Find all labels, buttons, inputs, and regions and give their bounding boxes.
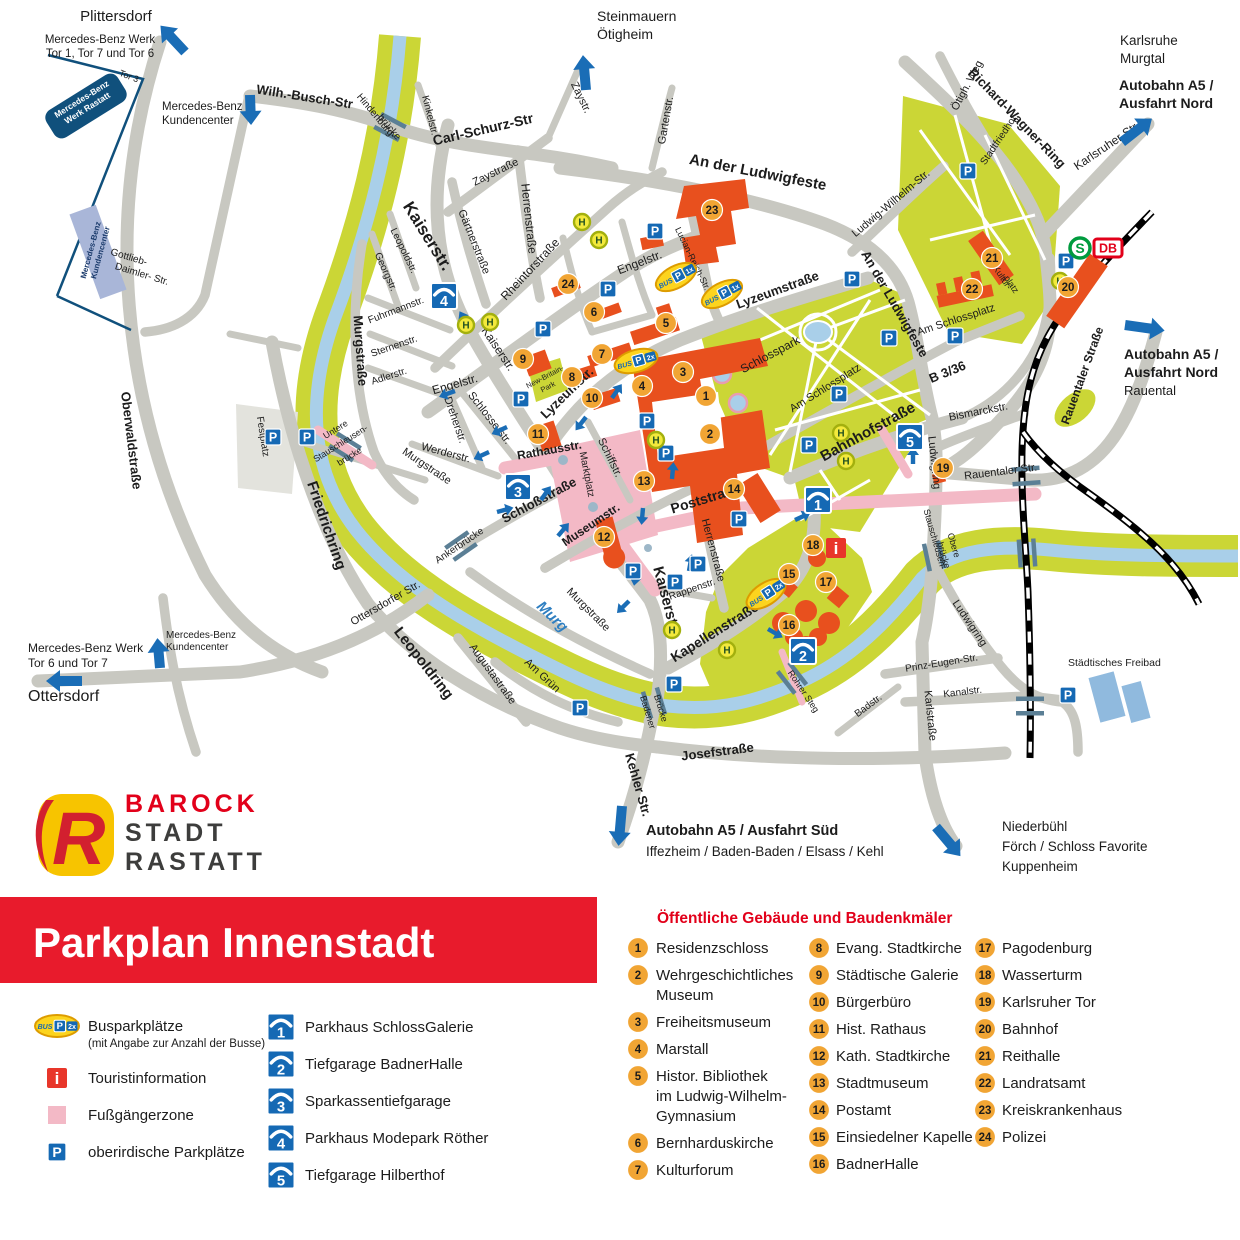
- schlosspark-pond: [804, 321, 832, 343]
- parking-letter: P: [671, 575, 679, 589]
- marker-number: 10: [813, 997, 826, 1009]
- parking-letter: P: [517, 392, 525, 406]
- parking-icon: P: [299, 429, 315, 445]
- marker-number: 16: [813, 1159, 826, 1171]
- parking-garage-icon-1: 1: [268, 1014, 295, 1042]
- map-marker-18: 18: [803, 535, 824, 556]
- bus-stop-icon: H: [838, 453, 854, 469]
- destination-label: Mercedes-Benz Werk: [28, 641, 144, 655]
- marker-number: 18: [807, 540, 820, 552]
- marker-number: 5: [635, 1071, 642, 1083]
- parking-letter: P: [662, 446, 670, 460]
- parking-letter: P: [604, 282, 612, 296]
- marker-number: 23: [979, 1105, 992, 1117]
- destination-label: Murgtal: [1120, 51, 1165, 66]
- map-marker-10: 10: [809, 992, 830, 1013]
- marker-number: 8: [816, 943, 823, 955]
- map-marker-17: 17: [975, 938, 996, 959]
- garage-number: 1: [814, 498, 822, 514]
- map-marker-2: 2: [628, 965, 649, 986]
- parking-letter: P: [303, 430, 311, 444]
- bus-stop-letter: H: [842, 457, 849, 468]
- parking-letter: P: [964, 164, 972, 178]
- marker-number: 15: [783, 569, 796, 581]
- bus-stop-letter: H: [578, 218, 585, 229]
- building-list-text: Freiheitsmuseum: [656, 1014, 771, 1031]
- map-marker-24: 24: [975, 1127, 996, 1148]
- garage-number: 4: [277, 1136, 286, 1152]
- map-marker-22: 22: [975, 1073, 996, 1094]
- parking-icon: P: [844, 271, 860, 287]
- title-banner: Parkplan Innenstadt: [0, 897, 597, 983]
- destination-label: Ötigheim: [597, 25, 653, 42]
- pedestrian-zone-swatch: [48, 1106, 66, 1124]
- bus-stop-icon: H: [591, 232, 607, 248]
- rail-logos: SDB: [1070, 238, 1122, 258]
- marker-number: 11: [532, 429, 545, 441]
- marker-number: 4: [635, 1044, 642, 1056]
- marker-number: 21: [979, 1051, 992, 1063]
- bus-stop-icon: H: [719, 642, 735, 658]
- building-list-text: BadnerHalle: [836, 1156, 919, 1173]
- building-list-item: 14Postamt: [809, 1100, 892, 1121]
- map-marker-7: 7: [592, 344, 613, 365]
- map-marker-10: 10: [582, 388, 603, 409]
- marker-number: 13: [638, 476, 651, 488]
- map-marker-16: 16: [779, 615, 800, 636]
- parking-garage-icon-1: 1: [805, 487, 831, 514]
- building-list-text: Landratsamt: [1002, 1075, 1086, 1092]
- map-marker-14: 14: [724, 479, 745, 500]
- map-marker-20: 20: [975, 1019, 996, 1040]
- parkplan-poster: Mercedes-BenzWerk RastattMercedes-BenzKu…: [0, 0, 1240, 1240]
- map-marker-15: 15: [809, 1127, 830, 1148]
- parking-letter: P: [805, 438, 813, 452]
- map-marker-8: 8: [809, 938, 830, 959]
- legend-garage-label: Tiefgarage BadnerHalle: [305, 1056, 463, 1073]
- building-list-text: Marstall: [656, 1041, 709, 1058]
- marker-number: 9: [816, 970, 822, 982]
- parking-icon: P: [881, 330, 897, 346]
- bus-stop-letter: H: [652, 436, 659, 447]
- info-letter: i: [55, 1069, 60, 1088]
- logo-word-bot: RASTATT: [125, 848, 266, 876]
- parking-icon: P: [831, 386, 847, 402]
- map-marker-20: 20: [1058, 277, 1079, 298]
- bus-p: P: [57, 1021, 64, 1032]
- building-list-item: 24Polizei: [975, 1127, 1047, 1148]
- parking-letter: P: [835, 387, 843, 401]
- building-list-text: Museum: [656, 987, 714, 1004]
- destination-label: Rauental: [1124, 383, 1176, 398]
- destination-label: Autobahn A5 / Ausfahrt Süd: [646, 823, 838, 839]
- map-marker-4: 4: [628, 1039, 649, 1060]
- marker-number: 24: [562, 279, 575, 291]
- bus-stop-icon: H: [664, 622, 680, 638]
- parking-icon: P: [667, 574, 683, 590]
- tourist-info-icon: i: [47, 1068, 67, 1088]
- destination-label: Karlsruhe: [1120, 33, 1178, 48]
- map-marker-24: 24: [558, 274, 579, 295]
- page-title: Parkplan Innenstadt: [33, 919, 434, 966]
- destination-label: Kundencenter: [162, 115, 234, 127]
- marker-number: 14: [728, 484, 741, 496]
- destination-label: Autobahn A5 /: [1119, 77, 1213, 93]
- destination-label: Tor 1, Tor 7 und Tor 6: [46, 48, 154, 60]
- parking-letter: P: [576, 701, 584, 715]
- parking-icon: P: [1060, 687, 1076, 703]
- map-marker-2: 2: [700, 424, 721, 445]
- marker-number: 9: [520, 354, 526, 366]
- destination-label: Iffezheim / Baden-Baden / Elsass / Kehl: [646, 844, 884, 859]
- building-list-text: Wasserturm: [1002, 967, 1082, 984]
- marker-number: 17: [979, 943, 992, 955]
- map-marker-13: 13: [809, 1073, 830, 1094]
- marker-number: 2: [635, 970, 641, 982]
- tourist-info-icon: i: [826, 538, 846, 558]
- marker-number: 13: [813, 1078, 826, 1090]
- bus-stop-icon: H: [833, 425, 849, 441]
- destination-label: Kuppenheim: [1002, 859, 1078, 874]
- building-list-item: 22Landratsamt: [975, 1073, 1087, 1094]
- destination-label: Mercedes-Benz Werk: [45, 34, 156, 46]
- building-list-text: Einsiedelner Kapelle: [836, 1129, 973, 1146]
- bus-stop-icon: H: [648, 432, 664, 448]
- info-letter: i: [834, 539, 839, 558]
- legend-label: Busparkplätze: [88, 1018, 183, 1035]
- building-list-item: 13Stadtmuseum: [809, 1073, 929, 1094]
- marker-number: 6: [591, 307, 597, 319]
- building-list-text: Polizei: [1002, 1129, 1046, 1146]
- building-list-item: 10Bürgerbüro: [809, 992, 912, 1013]
- legend-label: oberirdische Parkplätze: [88, 1144, 245, 1161]
- marker-number: 4: [639, 381, 646, 393]
- map-marker-5: 5: [656, 313, 677, 334]
- parking-letter: P: [539, 322, 547, 336]
- map-marker-22: 22: [962, 279, 983, 300]
- legend-garage-label: Parkhaus SchlossGalerie: [305, 1019, 473, 1036]
- map-marker-12: 12: [809, 1046, 830, 1067]
- parking-icon: P: [48, 1143, 66, 1161]
- marker-number: 14: [813, 1105, 826, 1117]
- parking-letter: P: [629, 564, 637, 578]
- marker-number: 12: [813, 1051, 826, 1063]
- marker-number: 5: [663, 318, 670, 330]
- logo-word-mid: STADT: [125, 819, 226, 847]
- logo-word-top: BAROCK: [125, 790, 259, 818]
- map-marker-21: 21: [982, 248, 1003, 269]
- marker-number: 19: [937, 463, 950, 475]
- map-marker-12: 12: [594, 527, 615, 548]
- garage-number: 5: [906, 435, 914, 451]
- legend-label: Touristinformation: [88, 1070, 206, 1087]
- building-list-text: im Ludwig-Wilhelm-: [656, 1088, 787, 1105]
- map-marker-3: 3: [673, 362, 694, 383]
- bus-text: BUS: [38, 1024, 53, 1031]
- parking-letter: P: [848, 272, 856, 286]
- marker-number: 22: [966, 284, 979, 296]
- parking-letter: P: [1064, 688, 1072, 702]
- destination-label: Mercedes-Benz: [162, 101, 243, 113]
- marker-number: 24: [979, 1132, 992, 1144]
- bus-parking-icon: BUSP2x: [35, 1015, 79, 1037]
- parking-icon: P: [947, 328, 963, 344]
- building-list-text: Postamt: [836, 1102, 892, 1119]
- map-marker-5: 5: [628, 1066, 649, 1087]
- building-list-text: Reithalle: [1002, 1048, 1060, 1065]
- parking-letter: P: [735, 512, 743, 526]
- parking-icon: P: [625, 563, 641, 579]
- building-list-item: 21Reithalle: [975, 1046, 1061, 1067]
- parking-garage-icon-4: 4: [431, 283, 457, 310]
- marker-number: 8: [569, 372, 576, 384]
- tourist-info-icon: i: [826, 538, 846, 558]
- marker-number: 7: [599, 349, 605, 361]
- legend-garage-label: Parkhaus Modepark Röther: [305, 1130, 488, 1147]
- parking-letter: P: [1062, 254, 1070, 268]
- db-logo: DB: [1094, 239, 1122, 257]
- parking-icon: P: [690, 556, 706, 572]
- marker-number: 6: [635, 1138, 641, 1150]
- marker-number: 3: [680, 367, 686, 379]
- building-list-text: Evang. Stadtkirche: [836, 940, 962, 957]
- parking-letter: P: [885, 331, 893, 345]
- destination-label: Steinmauern: [597, 8, 676, 24]
- legend-garage-label: Tiefgarage Hilberthof: [305, 1167, 445, 1184]
- map-marker-11: 11: [809, 1019, 830, 1040]
- map-marker-23: 23: [702, 200, 723, 221]
- destination-label: Ausfahrt Nord: [1119, 95, 1213, 111]
- parking-letter: P: [951, 329, 959, 343]
- map-marker-4: 4: [632, 376, 653, 397]
- garage-number: 5: [277, 1173, 285, 1189]
- map-marker-15: 15: [779, 564, 800, 585]
- building-list-item: 16BadnerHalle: [809, 1154, 919, 1175]
- parking-icon: P: [647, 223, 663, 239]
- building-list-text: Histor. Bibliothek: [656, 1068, 768, 1085]
- parking-letter: P: [651, 224, 659, 238]
- garage-number: 3: [514, 485, 522, 501]
- parking-letter: P: [694, 557, 702, 571]
- bus-stop-letter: H: [668, 626, 675, 637]
- marker-number: 11: [813, 1024, 826, 1036]
- parking-garage-icon-5: 5: [268, 1162, 295, 1190]
- parking-icon: P: [600, 281, 616, 297]
- destination-label: Kundencenter: [166, 642, 229, 653]
- marker-number: 21: [986, 253, 999, 265]
- parking-letter: P: [52, 1144, 61, 1160]
- map-marker-9: 9: [809, 965, 830, 986]
- bus-stop-icon: H: [458, 317, 474, 333]
- garage-number: 3: [277, 1099, 285, 1115]
- destination-label: Ottersdorf: [28, 688, 100, 705]
- marker-number: 12: [598, 532, 611, 544]
- parking-icon: P: [666, 676, 682, 692]
- parking-garage-icon-3: 3: [268, 1088, 295, 1116]
- parking-letter: P: [670, 677, 678, 691]
- map-marker-23: 23: [975, 1100, 996, 1121]
- garage-number: 2: [277, 1062, 285, 1078]
- marker-number: 16: [783, 620, 796, 632]
- building-list-text: Karlsruher Tor: [1002, 994, 1096, 1011]
- map-marker-1: 1: [628, 938, 649, 959]
- marker-number: 7: [635, 1165, 641, 1177]
- building-list-text: Residenzschloss: [656, 940, 769, 957]
- building-list-item: 19Karlsruher Tor: [975, 992, 1096, 1013]
- map-marker-19: 19: [975, 992, 996, 1013]
- building-list-text: Pagodenburg: [1002, 940, 1092, 957]
- map-marker-7: 7: [628, 1160, 649, 1181]
- bus-stop-letter: H: [595, 236, 602, 247]
- destination-label: Niederbühl: [1002, 819, 1067, 834]
- building-list-text: Kulturforum: [656, 1162, 734, 1179]
- marker-number: 17: [820, 577, 833, 589]
- marker-number: 23: [706, 205, 719, 217]
- marker-number: 3: [635, 1017, 641, 1029]
- map-marker-19: 19: [933, 458, 954, 479]
- logo-mark-letter: R: [52, 797, 105, 880]
- map-marker-11: 11: [528, 424, 549, 445]
- marker-number: 2: [707, 429, 713, 441]
- building-list-item: 18Wasserturm: [975, 965, 1083, 986]
- sbahn-letter: S: [1075, 240, 1084, 256]
- map-marker-6: 6: [628, 1133, 649, 1154]
- map-marker-17: 17: [816, 572, 837, 593]
- parking-icon: P: [639, 413, 655, 429]
- bus-stop-icon: H: [574, 214, 590, 230]
- parking-icon: P: [265, 429, 281, 445]
- building-list-item: 20Bahnhof: [975, 1019, 1059, 1040]
- parking-icon: P: [801, 437, 817, 453]
- marker-number: 1: [635, 943, 642, 955]
- building-list-item: 4Marstall: [628, 1039, 709, 1060]
- map-marker-21: 21: [975, 1046, 996, 1067]
- building-list-text: Kreiskrankenhaus: [1002, 1102, 1122, 1119]
- destination-label: Plittersdorf: [80, 8, 153, 25]
- parking-icon: P: [731, 511, 747, 527]
- sbahn-logo: S: [1070, 238, 1090, 258]
- building-list-text: Bahnhof: [1002, 1021, 1059, 1038]
- destination-label: Tor 6 und Tor 7: [28, 656, 108, 670]
- building-list-item: 7Kulturforum: [628, 1160, 734, 1181]
- marker-number: 15: [813, 1132, 826, 1144]
- buildings-heading: Öffentliche Gebäude und Baudenkmäler: [657, 910, 952, 927]
- bus-stop-icon: H: [482, 314, 498, 330]
- db-letters: DB: [1099, 242, 1117, 256]
- parking-garage-icon-2: 2: [268, 1051, 295, 1079]
- parking-icon: P: [572, 700, 588, 716]
- marker-number: 22: [979, 1078, 992, 1090]
- parking-garage-icon-3: 3: [505, 474, 531, 501]
- building-list-text: Bernharduskirche: [656, 1135, 774, 1152]
- marker-number: 19: [979, 997, 992, 1009]
- destination-label: Städtisches Freibad: [1068, 657, 1161, 669]
- map-marker-18: 18: [975, 965, 996, 986]
- map-marker-13: 13: [634, 471, 655, 492]
- building-list-text: Kath. Stadtkirche: [836, 1048, 950, 1065]
- map-marker-8: 8: [562, 367, 583, 388]
- building-list-text: Städtische Galerie: [836, 967, 959, 984]
- parking-icon: P: [513, 391, 529, 407]
- legend-sublabel: (mit Angabe zur Anzahl der Busse): [88, 1038, 265, 1050]
- map-marker-3: 3: [628, 1012, 649, 1033]
- legend-garage-label: Sparkassentiefgarage: [305, 1093, 451, 1110]
- marker-number: 1: [703, 391, 710, 403]
- marker-number: 18: [979, 970, 992, 982]
- building-list-text: Stadtmuseum: [836, 1075, 929, 1092]
- bus-stop-letter: H: [837, 429, 844, 440]
- building-list-text: Wehrgeschichtliches: [656, 967, 793, 984]
- destination-label: Mercedes-Benz: [166, 630, 236, 641]
- bus-stop-letter: H: [462, 321, 469, 332]
- building-list-item: 11Hist. Rathaus: [809, 1019, 927, 1040]
- parking-garage-icon-5: 5: [897, 424, 923, 451]
- map-marker-9: 9: [513, 349, 534, 370]
- map-marker-1: 1: [696, 386, 717, 407]
- destination-label: Ausfahrt Nord: [1124, 364, 1218, 380]
- parking-garage-icon-4: 4: [268, 1125, 295, 1153]
- parking-garage-icon-2: 2: [790, 638, 816, 665]
- bus-stop-letter: H: [486, 318, 493, 329]
- marker-number: 20: [1062, 282, 1075, 294]
- building-list-text: Hist. Rathaus: [836, 1021, 926, 1038]
- garage-number: 1: [277, 1025, 285, 1041]
- parking-letter: P: [269, 430, 277, 444]
- destination-label: Förch / Schloss Favorite: [1002, 839, 1148, 854]
- bus-stop-letter: H: [723, 646, 730, 657]
- parking-icon: P: [535, 321, 551, 337]
- building-list-text: Gymnasium: [656, 1108, 736, 1125]
- map-marker-14: 14: [809, 1100, 830, 1121]
- destination-label: Autobahn A5 /: [1124, 346, 1218, 362]
- map-marker-6: 6: [584, 302, 605, 323]
- marker-number: 20: [979, 1024, 992, 1036]
- bus-count: 2x: [68, 1024, 76, 1031]
- marker-number: 10: [586, 393, 599, 405]
- legend-label: Fußgängerzone: [88, 1107, 194, 1124]
- building-list-text: Bürgerbüro: [836, 994, 911, 1011]
- map-marker-16: 16: [809, 1154, 830, 1175]
- parking-letter: P: [643, 414, 651, 428]
- parking-icon: P: [960, 163, 976, 179]
- garage-number: 4: [440, 294, 448, 310]
- garage-number: 2: [799, 649, 807, 665]
- building-list-item: 17Pagodenburg: [975, 938, 1093, 959]
